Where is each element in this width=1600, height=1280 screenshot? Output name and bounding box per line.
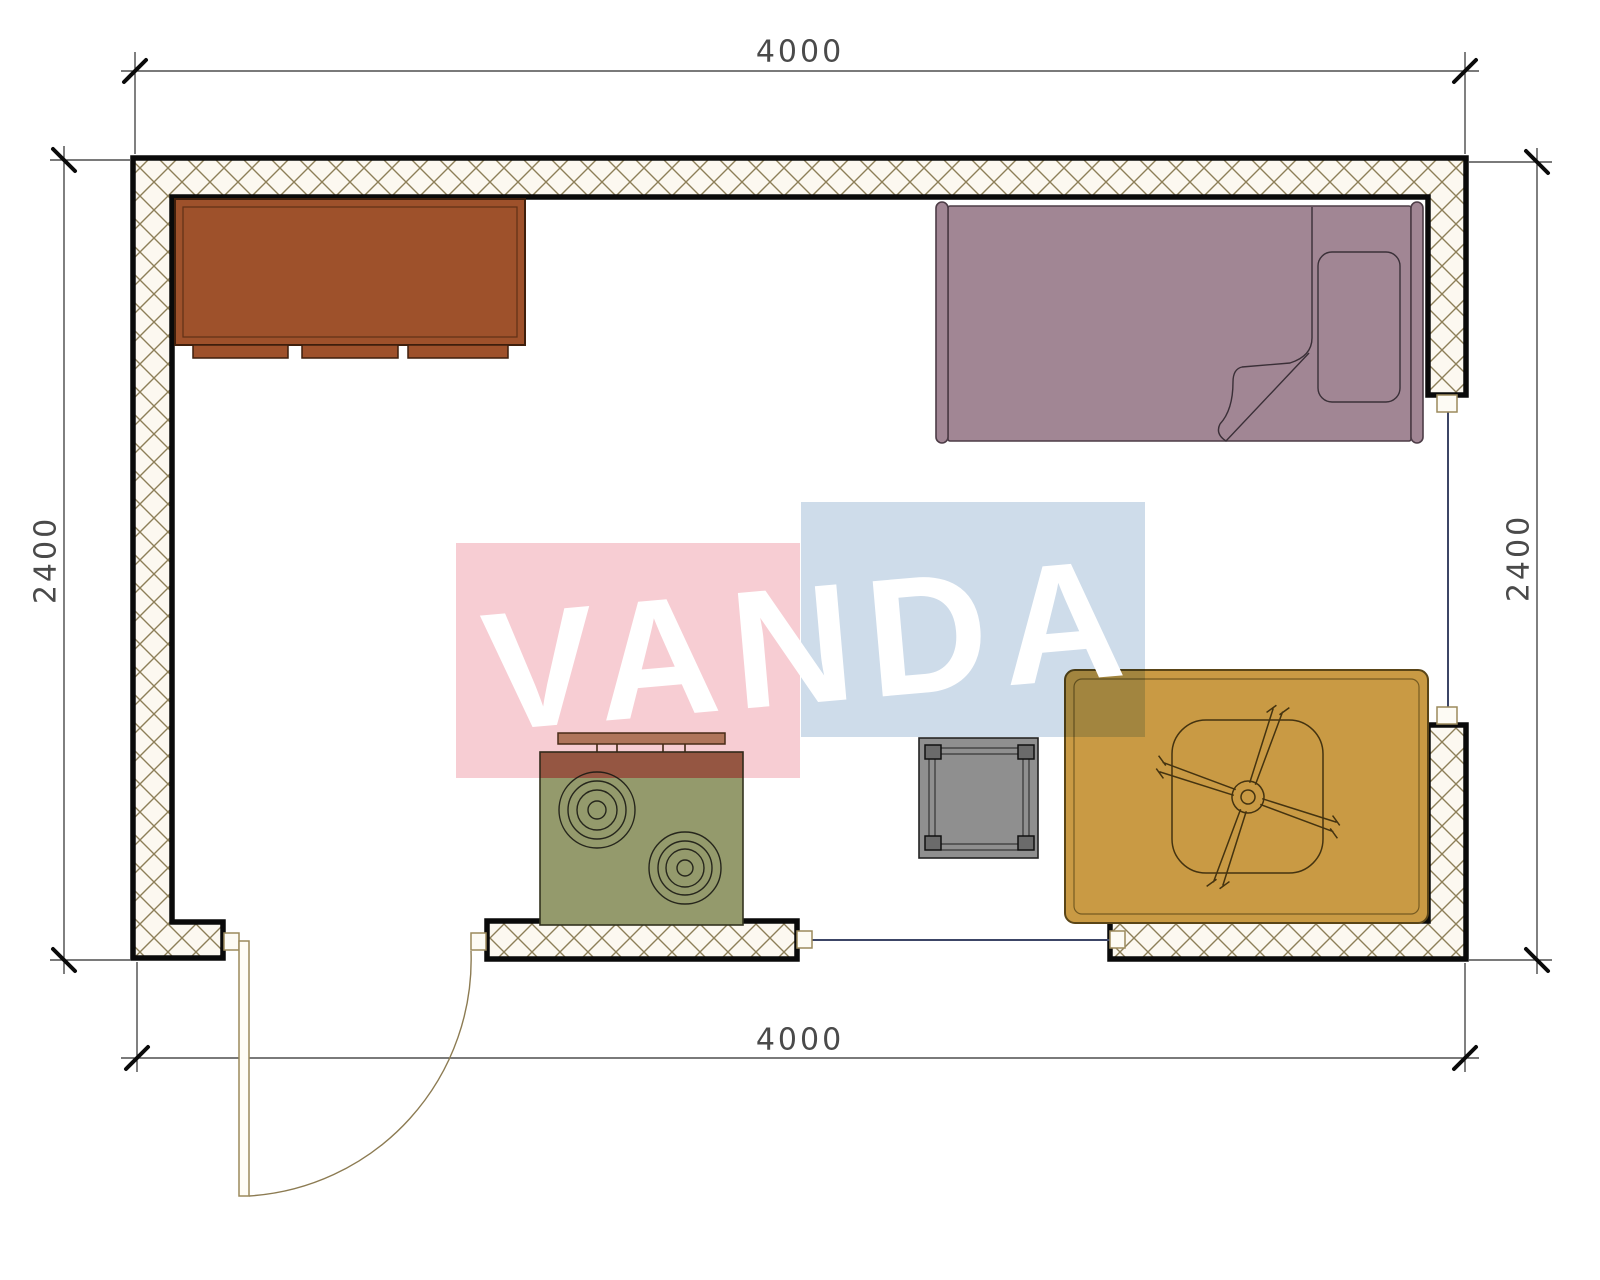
single-bed xyxy=(936,202,1423,443)
side-table xyxy=(919,738,1038,858)
dim-right-2400: 2400 xyxy=(1502,514,1537,602)
door xyxy=(224,933,486,1196)
dim-bottom-4000: 4000 xyxy=(756,1023,844,1058)
bed-head-bar xyxy=(936,202,948,443)
floor-plan-canvas: 4000 4000 2400 2400 VANDA xyxy=(0,0,1600,1280)
bed-foot-bar xyxy=(1411,202,1423,443)
door-leaf xyxy=(239,941,249,1196)
door-jambs xyxy=(224,933,486,950)
dim-top-4000: 4000 xyxy=(756,35,844,70)
wall-bottom-a xyxy=(487,921,797,959)
dresser xyxy=(175,199,525,358)
dim-left-2400: 2400 xyxy=(29,516,64,604)
door-swing-arc xyxy=(249,951,471,1196)
bed-pillow xyxy=(1318,252,1400,402)
